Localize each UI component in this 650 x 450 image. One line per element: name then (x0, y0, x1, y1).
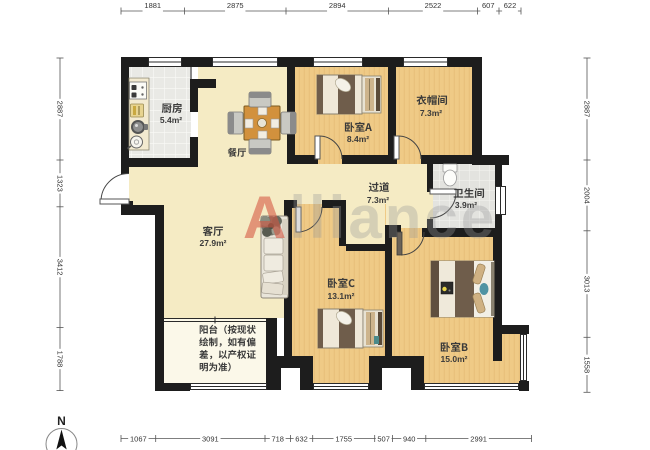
svg-text:5.4m²: 5.4m² (160, 115, 182, 125)
svg-text:N: N (57, 414, 66, 428)
svg-text:13.1m²: 13.1m² (328, 291, 355, 301)
svg-text:Alliance: Alliance (243, 184, 497, 251)
svg-text:3091: 3091 (202, 435, 219, 444)
svg-text:940: 940 (403, 435, 416, 444)
svg-text:2004: 2004 (583, 187, 592, 204)
svg-text:632: 632 (295, 435, 308, 444)
svg-text:1323: 1323 (56, 175, 65, 192)
svg-text:3412: 3412 (56, 259, 65, 276)
svg-text:2887: 2887 (56, 101, 65, 118)
svg-text:7.3m²: 7.3m² (420, 108, 442, 118)
svg-text:622: 622 (504, 1, 517, 10)
svg-text:1881: 1881 (144, 1, 161, 10)
svg-text:2887: 2887 (583, 101, 592, 118)
svg-text:8.4m²: 8.4m² (347, 134, 369, 144)
svg-text:2991: 2991 (470, 435, 487, 444)
svg-text:1788: 1788 (56, 351, 65, 368)
svg-text:1755: 1755 (335, 435, 352, 444)
svg-text:607: 607 (482, 1, 495, 10)
svg-text:3013: 3013 (583, 276, 592, 293)
svg-text:2522: 2522 (425, 1, 442, 10)
svg-text:2894: 2894 (329, 1, 346, 10)
svg-text:15.0m²: 15.0m² (441, 354, 468, 364)
svg-text:507: 507 (377, 435, 390, 444)
svg-text:27.9m²: 27.9m² (200, 238, 227, 248)
svg-text:2875: 2875 (227, 1, 244, 10)
svg-text:1067: 1067 (130, 435, 147, 444)
svg-text:1558: 1558 (583, 356, 592, 373)
svg-text:718: 718 (271, 435, 284, 444)
